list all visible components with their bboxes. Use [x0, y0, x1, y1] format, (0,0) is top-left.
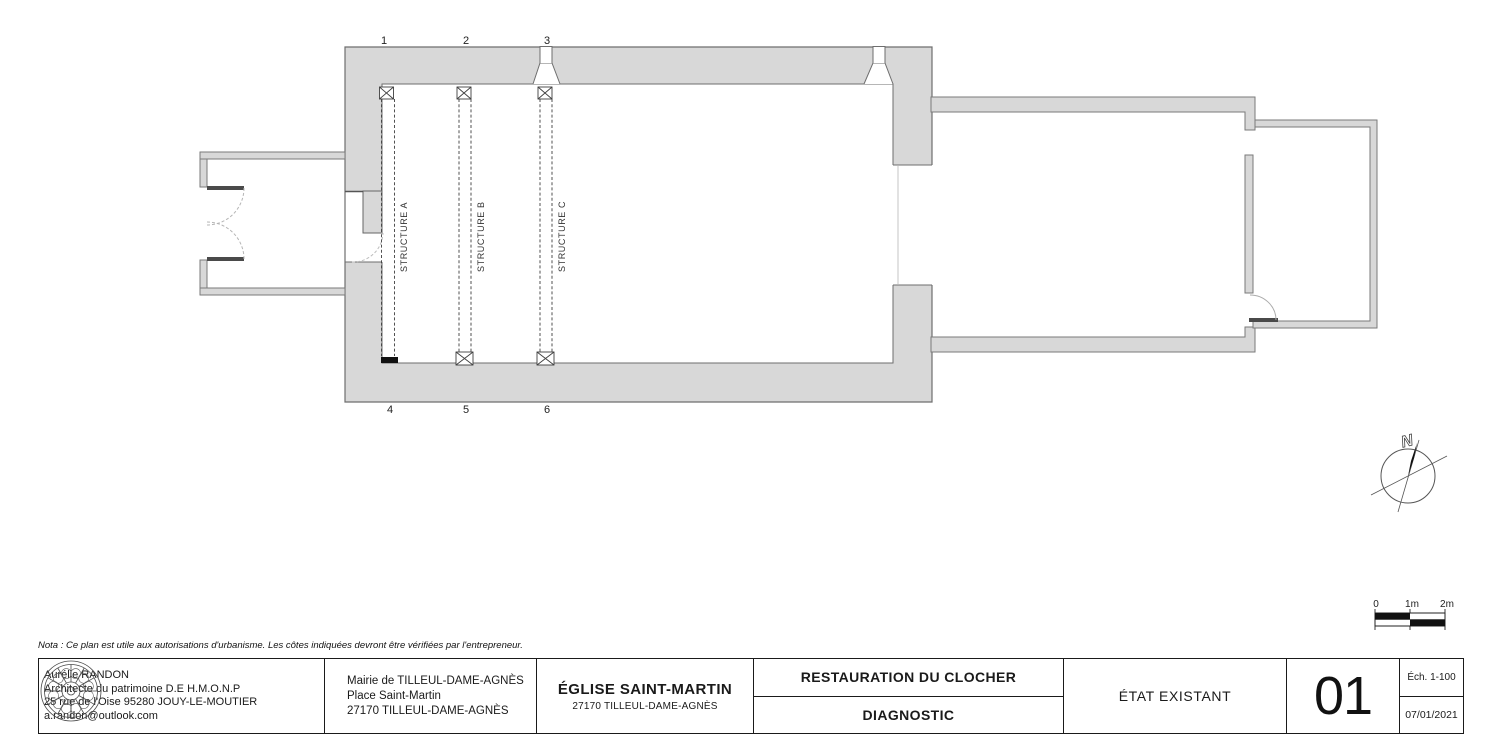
door-swing-arc	[1250, 295, 1276, 320]
door-leaf	[207, 257, 244, 261]
door-swing-arc	[207, 188, 244, 225]
column-marker-filled	[381, 357, 398, 363]
title-block: Aurélie RANDON Architecte du patrimoine …	[38, 658, 1464, 734]
grid-label-6: 6	[544, 404, 550, 416]
north-label: N	[1400, 432, 1416, 451]
grid-label-2: 2	[463, 35, 469, 47]
scale-label-1m: 1m	[1405, 599, 1419, 610]
structure-b-label: STRUCTURE B	[476, 201, 486, 272]
scale-bar: 0 1m 2m	[1373, 599, 1454, 630]
grid-label-3: 3	[544, 35, 550, 47]
scale-label-2m: 2m	[1440, 599, 1454, 610]
nave-walls	[345, 47, 932, 402]
title-block-client-cell: Mairie de TILLEUL-DAME-AGNÈS Place Saint…	[324, 659, 536, 733]
north-arrow-icon: N	[1371, 432, 1447, 512]
title-block-phase-cell: RESTAURATION DU CLOCHER DIAGNOSTIC	[753, 659, 1063, 733]
floor-plan: 1 2 3 4 5 6 STRUCTURE A STRUCTURE B STRU…	[0, 0, 1500, 740]
title-block-project-cell: ÉGLISE SAINT-MARTIN 27170 TILLEUL-DAME-A…	[536, 659, 753, 733]
drawing-scale: Éch. 1-100	[1400, 659, 1463, 696]
porch-walls	[200, 152, 345, 295]
structure-a-label: STRUCTURE A	[399, 202, 409, 272]
title-block-meta-cell: Éch. 1-100 07/01/2021	[1399, 659, 1463, 733]
client-name: Mairie de TILLEUL-DAME-AGNÈS	[347, 674, 536, 689]
project-subtitle: 27170 TILLEUL-DAME-AGNÈS	[572, 701, 717, 712]
grid-label-5: 5	[463, 404, 469, 416]
door-swing-arc	[352, 233, 383, 262]
scale-label-0: 0	[1373, 599, 1379, 610]
grid-label-1: 1	[381, 35, 387, 47]
project-title: ÉGLISE SAINT-MARTIN	[558, 681, 732, 698]
door-leaf	[1249, 318, 1278, 322]
nave-west-door	[345, 191, 383, 262]
phase-title: RESTAURATION DU CLOCHER	[754, 659, 1063, 696]
phase-subtitle: DIAGNOSTIC	[754, 696, 1063, 734]
sheet-number: 01	[1286, 659, 1399, 733]
nota-text: Nota : Ce plan est utile aux autorisatio…	[38, 640, 523, 651]
sacristy-door	[1249, 295, 1278, 322]
sacristy-walls	[1253, 120, 1377, 328]
rose-window-logo	[39, 659, 103, 723]
porch-double-door	[207, 186, 244, 261]
drawing-title: ÉTAT EXISTANT	[1063, 659, 1286, 733]
client-address-1: Place Saint-Martin	[347, 689, 536, 704]
structure-labels: STRUCTURE A STRUCTURE B STRUCTURE C	[399, 201, 567, 272]
door-swing-arc	[207, 222, 244, 259]
title-block-architect-cell: Aurélie RANDON Architecte du patrimoine …	[39, 659, 324, 733]
client-address-2: 27170 TILLEUL-DAME-AGNÈS	[347, 704, 536, 719]
drawing-sheet: 1 2 3 4 5 6 STRUCTURE A STRUCTURE B STRU…	[0, 0, 1500, 740]
grid-label-4: 4	[387, 404, 393, 416]
drawing-date: 07/01/2021	[1400, 696, 1463, 734]
chancel-walls	[931, 97, 1255, 352]
structure-c-label: STRUCTURE C	[557, 201, 567, 272]
door-leaf	[207, 186, 244, 190]
